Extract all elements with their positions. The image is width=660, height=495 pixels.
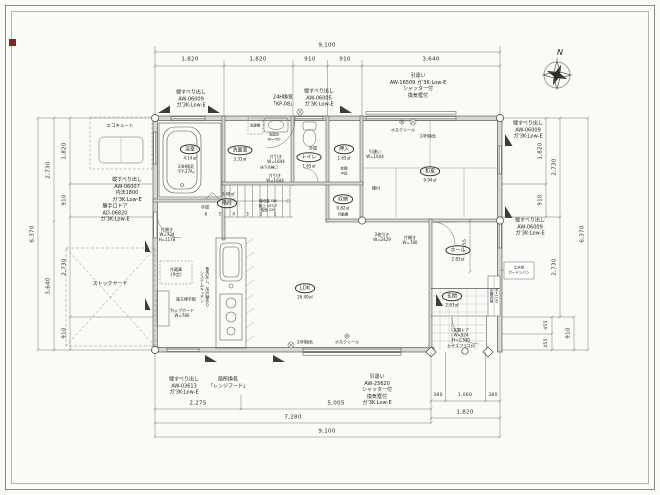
room-closet-area: 0.82㎡ (337, 205, 350, 210)
room-stairs-name: 階段 (217, 198, 237, 208)
annot-window-bottom-right: 引違い AW-25620 シャッター付 換気框付 ガ'3K:Low-E (362, 374, 392, 407)
dim-left-outer: 6,370 (29, 225, 36, 242)
room-ldk-area: 26.49㎡ (297, 294, 312, 299)
room-genkan-name: 玄関 (442, 291, 462, 301)
room-wash-name: 洗面室 (227, 145, 252, 155)
dim-left-i4: 910 (61, 327, 68, 338)
floorplan-sheet: 9,100 1,820 1,820 910 910 3,640 2,275 5,… (0, 0, 660, 495)
room-genkan-area: 2.63㎡ (446, 302, 459, 307)
oshiire-shelf-note: 枕棚 中段 (341, 166, 348, 175)
room-ldk-name: LDK (295, 283, 315, 293)
annot-window-left: 縦すべり出し AW-06007 内法1800 ガ'3K:Low-E (112, 177, 142, 203)
annot-window-right-upper: 縦すべり出し AW-06009 ガ'3K:Low-E (513, 120, 543, 140)
dim-top-total: 9,100 (318, 42, 335, 49)
room-hall: ホール (445, 245, 470, 255)
annot-window-top-left: 縦すべり出し AW-06009 ガ'3K:Low-E (176, 89, 206, 109)
floor-hatch-label: 床下点検口 (260, 166, 278, 171)
dim-right-outer: 6,370 (579, 225, 586, 242)
annot-inner-hinged: 片開き W=734 H=1178 (159, 227, 176, 243)
room-genkan: 玄関 (442, 291, 462, 301)
room-oshiire: 押入 (334, 144, 354, 154)
dim-right-l2: 455 (544, 338, 550, 348)
floorplan-drawing (0, 0, 660, 495)
stairs-step-numbers: 6 5 4 3 2 1 (205, 211, 282, 216)
washbasin-label: 洗面台 W=750 (267, 132, 280, 141)
room-toilet: トイレ (296, 152, 321, 162)
shoe-cabinet-label: 玄関収納 W=1100 (489, 277, 498, 315)
room-closet: 収納 (333, 194, 353, 204)
dim-top-5: 3,640 (422, 56, 439, 63)
stockyard-area (66, 248, 155, 346)
closet-shelf-note: 可動棚 (338, 213, 349, 218)
room-hall-name: ホール (445, 245, 470, 255)
room-bath-name: 浴室 (180, 144, 200, 154)
dim-bottom-r1: 380 (433, 393, 443, 399)
annot-window-right-lower: 縦すべり出し AW-06009 ガ'3K:Low-E (515, 217, 545, 237)
room-washitsu-name: 和室 (420, 166, 440, 176)
counter-hatch (246, 238, 254, 342)
annot-range-hood-vent: 局所換気 「レンジフード」 (208, 377, 248, 390)
hoist-label-top: ホスクリール (391, 127, 415, 132)
vent24-label-top: 24H換気 (420, 133, 436, 138)
room-ldk: LDK (295, 283, 315, 293)
room-toilet-name: トイレ (296, 152, 321, 162)
north-label: N (557, 48, 563, 58)
annot-vent-top: 24H換気 「KP-08」 (271, 95, 295, 108)
room-closet-name: 収納 (333, 194, 353, 204)
annot-sliding-door-2: 片引き W=1644 (266, 173, 284, 183)
dim-bottom-rt: 1,820 (456, 409, 473, 416)
room-bath-vent: 24H換気 「FY-27A」 (175, 164, 197, 174)
room-stairs: 階段 (217, 198, 237, 208)
toilet-grab-bar: 手摺 (309, 145, 317, 150)
annot-window-top-mid: 縦すべり出し AW-06005 ガ'3K:Low-E (304, 88, 334, 108)
dim-right-l1: 455 (544, 320, 550, 330)
dim-right-m1: 2,730 (551, 158, 558, 175)
owner-supply-label: 施主様手配 (176, 296, 196, 301)
dim-bottom-b: 5,005 (327, 400, 344, 407)
annot-washitsu-hinged: 片開き W=780 (403, 235, 418, 245)
annot-back-door: 勝手口ドア AD-06820 ガ'3K:Low-E (100, 203, 129, 223)
annot-washitsu-sliding: 引違い W=1644 (366, 149, 384, 159)
dim-left-m1: 2,730 (45, 161, 52, 178)
room-bath-area: 4.14㎡ (184, 155, 197, 160)
dim-right-m2: 2,730 (551, 258, 558, 275)
dim-top-4: 910 (339, 56, 350, 63)
washitsu-shelf-note: 棚付 (372, 185, 380, 190)
room-toilet-area: 1.65㎡ (303, 163, 316, 168)
dim-bottom-a: 2,275 (189, 400, 206, 407)
dim-right-l3: 910 (565, 327, 572, 338)
dim-left-i1: 1,820 (61, 142, 68, 159)
dim-right-i2: 910 (537, 194, 544, 205)
dim-bottom-c: 7,280 (284, 414, 301, 421)
dim-left-i2: 910 (61, 194, 68, 205)
room-oshiire-name: 押入 (334, 144, 354, 154)
annot-window-bottom-left: 縦すべり出し AW-03613 ガ'3K:Low-E (169, 376, 199, 396)
room-washitsu: 和室 (420, 166, 440, 176)
dim-top-1: 1,820 (181, 56, 198, 63)
cupboard-unit (157, 291, 169, 326)
annot-window-top-right: 引違い AW-16509 ガ'3K:Low-E シャッター付 換気框付 (390, 73, 447, 99)
dim-top-2: 1,820 (249, 56, 266, 63)
toilet-fixture (303, 122, 316, 147)
room-oshiire-area: 1.65㎡ (338, 155, 351, 160)
washer-label: 洗濯機 (250, 124, 261, 129)
dim-bottom-r2: 1,060 (458, 393, 472, 399)
vent24-label-bottom: 24H換気 (297, 339, 313, 344)
ecocute-label: エコキュート (107, 124, 134, 130)
kitchen-counter (216, 238, 246, 348)
dim-bottom-total: 9,100 (318, 428, 335, 435)
dim-top-3: 910 (304, 56, 315, 63)
kitchen-label: システムキッチン 食洗なし、吊戸棚あり (200, 244, 210, 330)
room-stairs-area: 3.48㎡ (222, 191, 235, 196)
compass-rose (543, 58, 572, 89)
dim-left-i3: 2,730 (61, 258, 68, 275)
room-hall-area: 2.83㎡ (452, 256, 465, 261)
room-wash-area: 3.31㎡ (234, 156, 247, 161)
cupboard-label: カップボード W=780 (170, 308, 194, 318)
room-bath: 浴室 (180, 144, 200, 154)
hoist-label-bottom: ホスクリール (335, 339, 359, 344)
dim-bottom-r3: 380 (488, 393, 498, 399)
stockyard-label: ストックヤード (92, 281, 127, 288)
room-washitsu-area: 9.94㎡ (424, 177, 437, 182)
annot-double-sliding: 2枚引き W=2429 (373, 232, 391, 242)
fridge-label: 冷蔵庫 (予定) (170, 267, 182, 277)
dim-right-i1: 1,820 (537, 142, 544, 159)
annot-sliding-door-1: 片引き W=1644 (267, 154, 285, 164)
annot-entry-door: 玄関ドア W=924 H=2,330 カザスプラス付 (447, 328, 475, 349)
dim-left-m2: 3,640 (45, 277, 52, 294)
stairs-grab-bar: 手摺 (201, 204, 209, 209)
water-tap-label: 立水栓 ガーデンパン (508, 265, 529, 274)
room-wash: 洗面室 (227, 145, 252, 155)
